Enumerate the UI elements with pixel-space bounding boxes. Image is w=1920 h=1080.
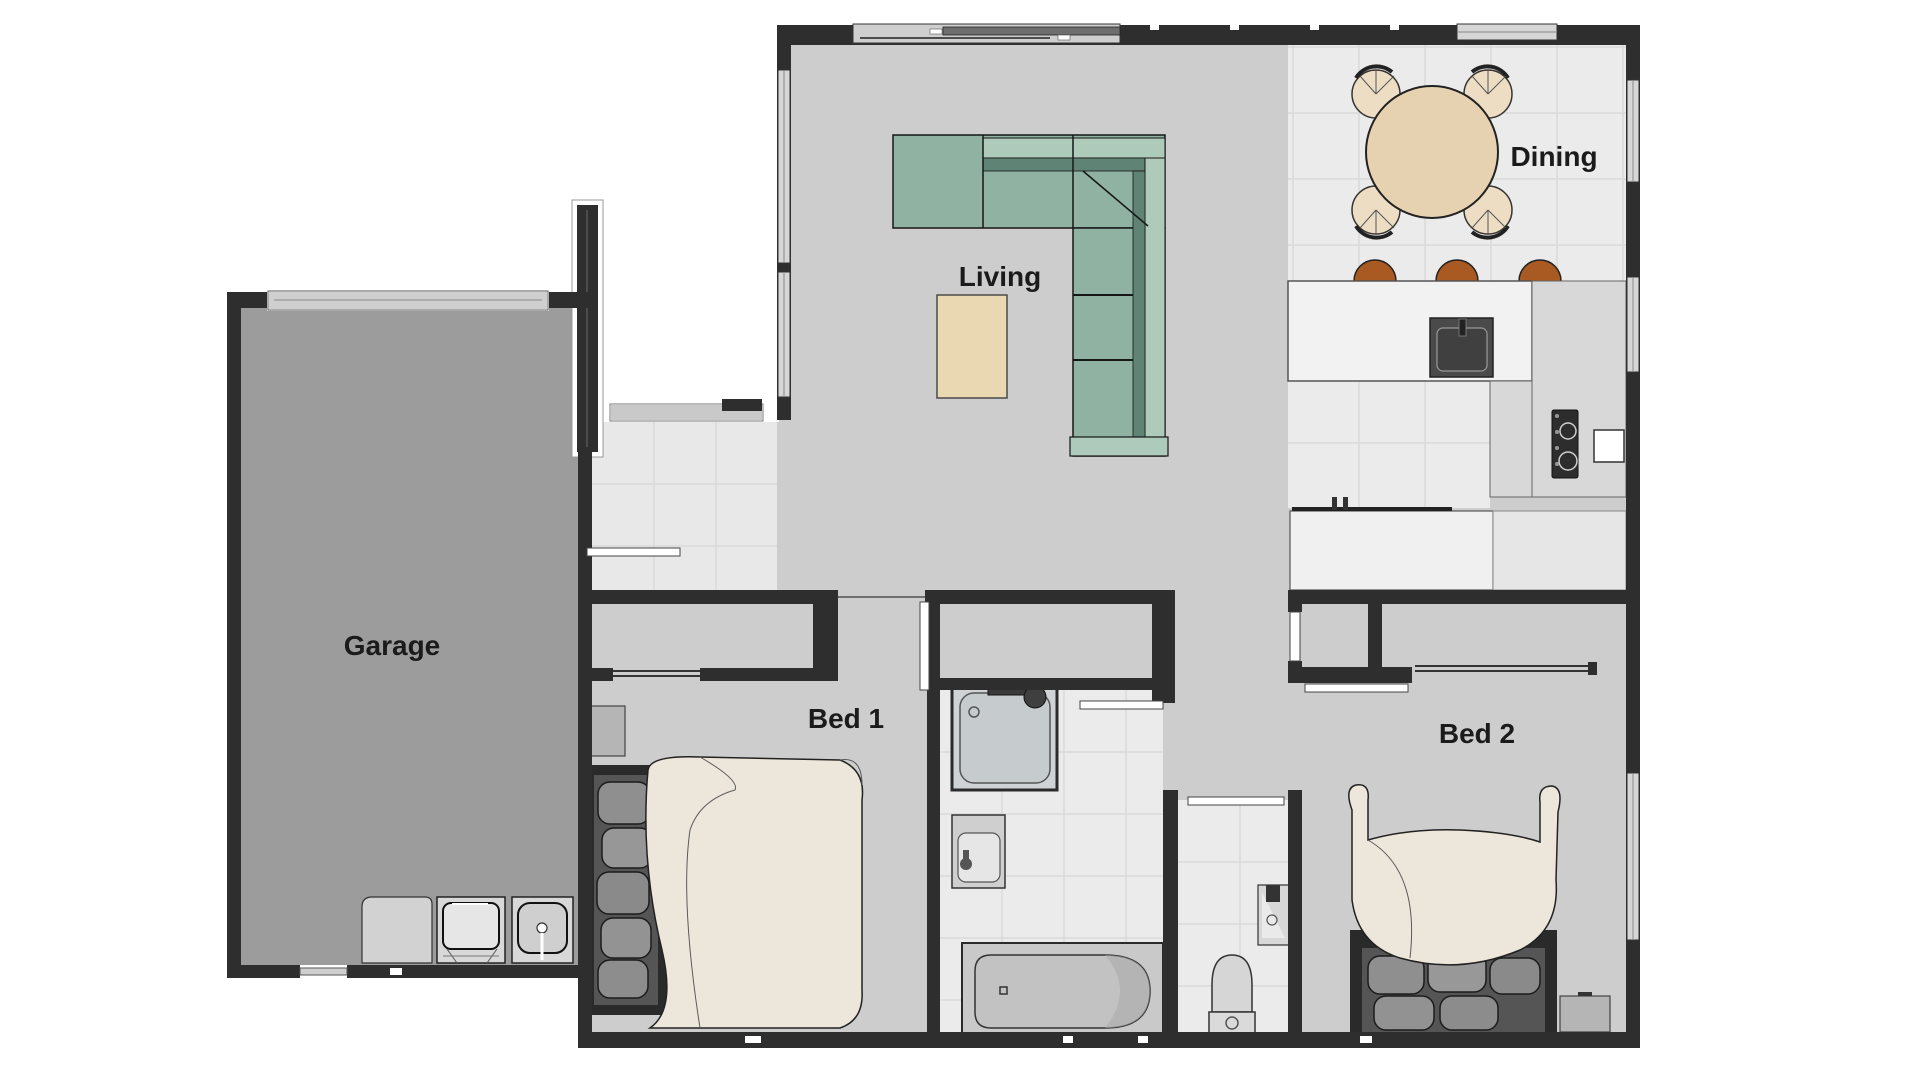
bed2-door-leaf	[1305, 684, 1408, 692]
tall-cabinets	[1532, 281, 1626, 497]
laundry-tub	[512, 897, 573, 963]
bed2-nightstand	[1560, 996, 1610, 1032]
bed1-closet-east-wall	[813, 604, 838, 681]
bathroom-north-wall	[940, 678, 1152, 690]
bed2-door-opening	[1290, 612, 1300, 661]
room-label-garage: Garage	[344, 630, 441, 661]
entry-door-leaf	[722, 399, 762, 411]
vanity-basin	[952, 815, 1005, 888]
dining-set	[1352, 66, 1512, 237]
washing-machine	[437, 897, 505, 963]
wall-garage-west	[227, 292, 241, 978]
wc-door-leaf	[1188, 797, 1284, 805]
bed2-closet-pillar	[1368, 604, 1382, 671]
shower	[952, 681, 1057, 790]
bathtub	[962, 943, 1163, 1035]
wc-west-wall	[1163, 790, 1178, 1038]
sliding-door-north	[853, 24, 1120, 43]
room-label-dining: Dining	[1510, 141, 1597, 172]
floor-plan-drawing: Garage Living Dining Bed 1 Bed 2	[0, 0, 1920, 1080]
wall-a-west	[587, 590, 838, 604]
room-label-living: Living	[959, 261, 1041, 292]
garage-fixtures	[362, 897, 573, 963]
wall-a-east	[1288, 590, 1640, 604]
wall-a-middle	[925, 590, 1152, 604]
wall-porch-spine	[572, 200, 603, 457]
dining-table	[1366, 86, 1498, 218]
nightstand-handle	[1578, 992, 1592, 996]
cabinet-run	[1490, 381, 1532, 497]
sofa-armrest	[1070, 437, 1168, 456]
floor-entry-tiles	[592, 422, 777, 590]
coffee-table-rug	[937, 295, 1007, 398]
garage-cabinet	[362, 897, 432, 963]
wc-east-wall	[1288, 790, 1302, 1038]
bed1-duvet	[646, 757, 863, 1028]
garage-side-door-sill	[300, 968, 347, 975]
bed1-closet-wall-1	[592, 668, 613, 681]
bathroom-door-leaf	[1080, 701, 1163, 709]
cooktop	[1552, 410, 1578, 478]
counter-faucet	[1343, 497, 1348, 510]
oven	[1594, 430, 1624, 462]
bed2-door-jamb-n	[1288, 604, 1302, 612]
bed1-closet-wall-2	[700, 668, 813, 681]
entry-living-door-leaf	[587, 548, 680, 556]
room-label-bed1: Bed 1	[808, 703, 884, 734]
floor-kitchen-tiles	[1288, 381, 1490, 508]
toilet	[1209, 955, 1255, 1035]
bed2-closet-wall	[1302, 667, 1412, 683]
entry-door	[610, 399, 763, 421]
sink-faucet	[1459, 319, 1466, 336]
bathroom-east-wall	[1152, 590, 1175, 703]
basin-faucet	[1266, 885, 1280, 902]
wall-garage-east	[578, 452, 592, 1048]
floor-plan-page: Garage Living Dining Bed 1 Bed 2	[0, 0, 1920, 1080]
garage-door	[268, 291, 548, 310]
island-sink	[1430, 318, 1493, 377]
wall-south	[578, 1032, 1640, 1048]
bed2-door-jamb-s	[1288, 661, 1302, 683]
wall-garage-south	[227, 965, 592, 978]
counter-faucet	[1332, 497, 1337, 510]
bed1-door-leaf	[920, 602, 929, 690]
bed1-nightstand-north	[590, 706, 625, 756]
room-label-bed2: Bed 2	[1439, 718, 1515, 749]
counter-edge	[1292, 507, 1452, 511]
wc-hand-basin	[1258, 885, 1289, 945]
kitchen-counter	[1290, 497, 1626, 590]
